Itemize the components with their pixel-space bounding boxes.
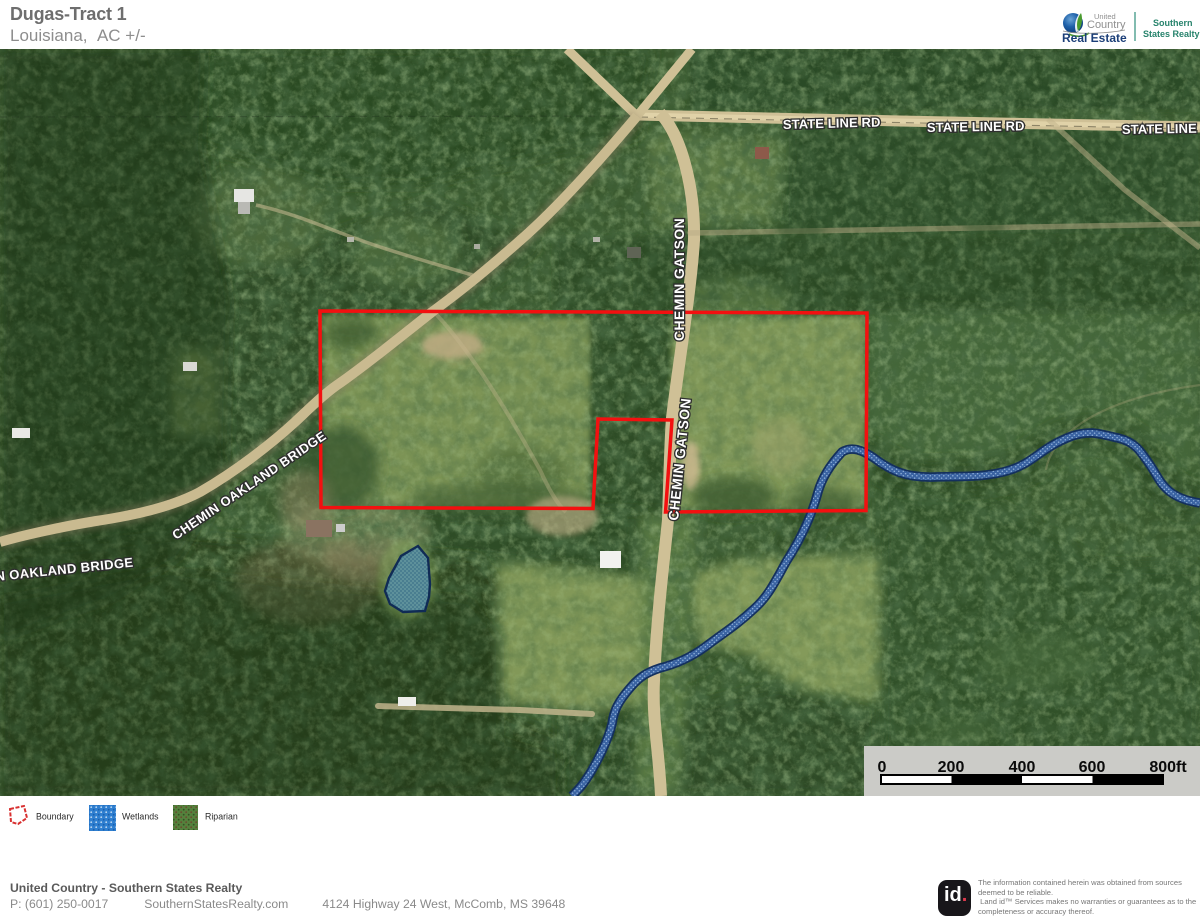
svg-text:STATE LINE RD: STATE LINE RD [1122, 120, 1200, 137]
svg-text:CHEMIN GATSON: CHEMIN GATSON [671, 218, 687, 341]
svg-text:Riparian: Riparian [205, 812, 238, 822]
svg-text:800ft: 800ft [1149, 759, 1187, 776]
svg-text:Real Estate: Real Estate [1062, 31, 1127, 45]
svg-text:Country: Country [1087, 19, 1126, 31]
svg-text:0: 0 [878, 759, 887, 776]
svg-text:States Realty: States Realty [1143, 29, 1200, 39]
svg-text:400: 400 [1009, 759, 1036, 776]
svg-text:Boundary: Boundary [36, 812, 74, 822]
svg-text:STATE LINE RD: STATE LINE RD [783, 114, 881, 132]
svg-text:STATE LINE RD: STATE LINE RD [927, 118, 1025, 135]
svg-text:200: 200 [938, 759, 965, 776]
svg-text:Wetlands: Wetlands [122, 812, 159, 822]
svg-text:Southern: Southern [1153, 18, 1193, 28]
svg-text:600: 600 [1079, 759, 1106, 776]
